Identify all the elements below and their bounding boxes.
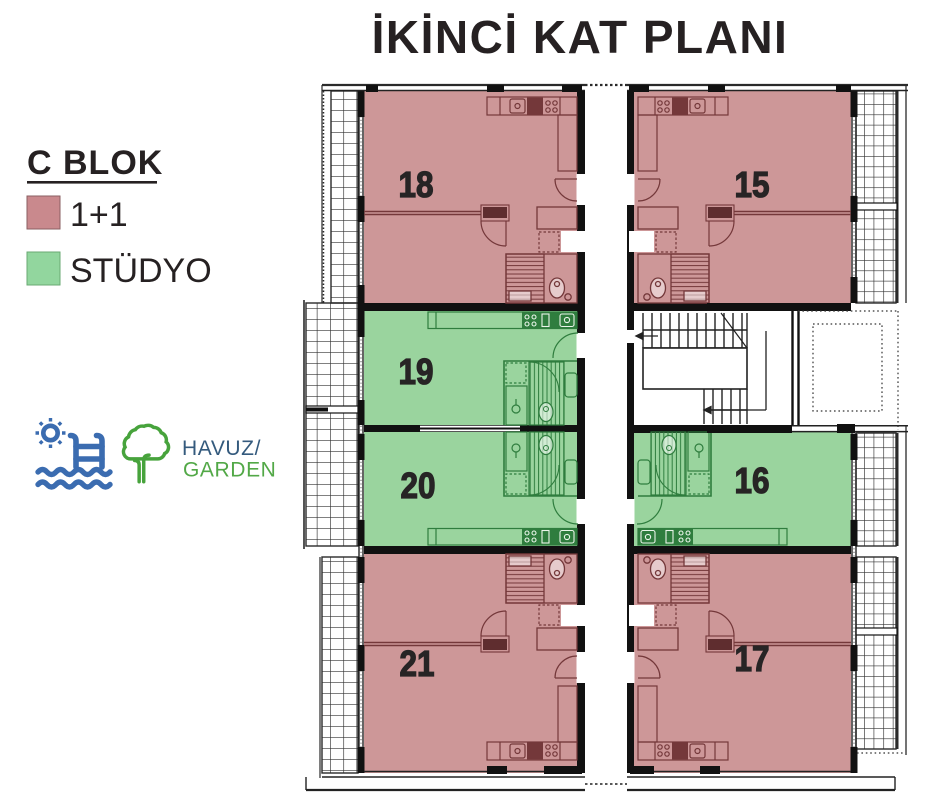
svg-text:1+1: 1+1 (70, 196, 128, 234)
svg-text:20: 20 (401, 465, 436, 506)
svg-text:C BLOK: C BLOK (27, 144, 163, 182)
svg-text:HAVUZ/: HAVUZ/ (182, 437, 261, 460)
svg-text:15: 15 (735, 164, 770, 205)
svg-text:21: 21 (400, 643, 435, 684)
svg-text:17: 17 (735, 638, 770, 679)
svg-text:16: 16 (735, 460, 770, 501)
svg-text:GARDEN: GARDEN (183, 459, 276, 482)
svg-text:18: 18 (399, 164, 434, 205)
svg-text:STÜDYO: STÜDYO (70, 252, 212, 290)
svg-text:İKİNCİ KAT PLANI: İKİNCİ KAT PLANI (372, 11, 789, 63)
svg-text:19: 19 (399, 351, 434, 392)
